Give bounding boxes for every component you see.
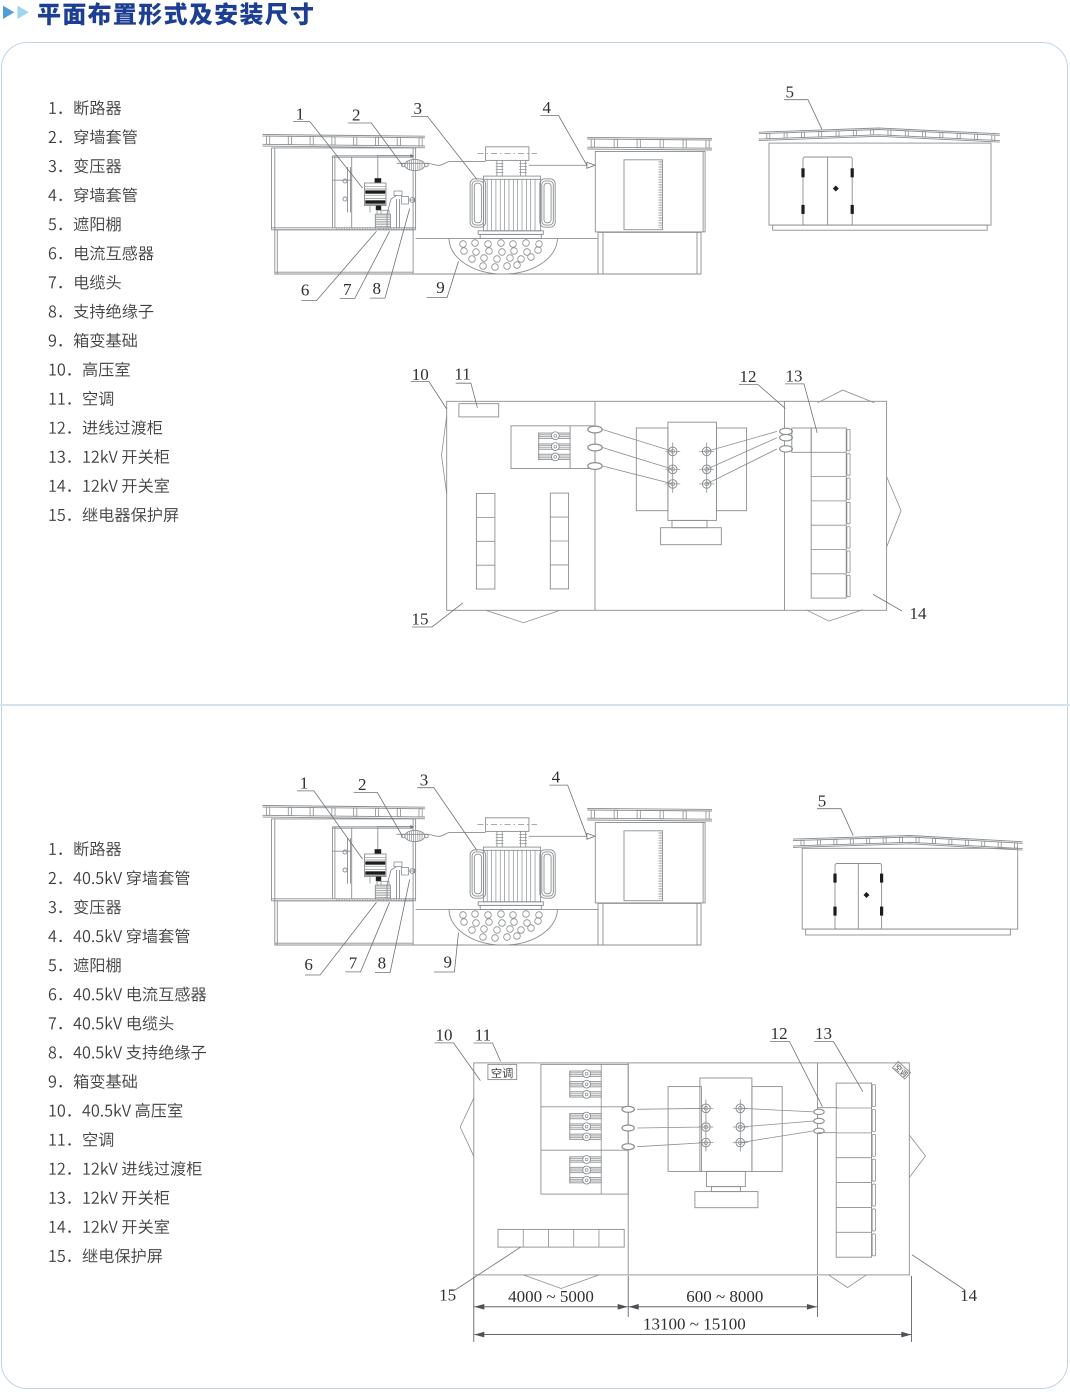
- svg-text:4000 ~ 5000: 4000 ~ 5000: [508, 1287, 594, 1306]
- svg-text:4: 4: [542, 98, 551, 117]
- svg-text:10: 10: [436, 1026, 453, 1045]
- svg-text:8: 8: [378, 953, 387, 972]
- svg-text:3: 3: [414, 99, 423, 118]
- svg-text:9: 9: [436, 278, 445, 297]
- svg-text:11: 11: [454, 365, 470, 384]
- svg-text:14: 14: [910, 604, 928, 623]
- svg-text:600 ~ 8000: 600 ~ 8000: [686, 1287, 763, 1306]
- svg-text:4: 4: [552, 768, 561, 787]
- svg-text:13100 ~ 15100: 13100 ~ 15100: [643, 1315, 746, 1334]
- svg-text:1: 1: [300, 774, 309, 793]
- svg-text:15: 15: [439, 1286, 456, 1305]
- svg-text:3: 3: [420, 770, 429, 789]
- svg-text:7: 7: [349, 953, 358, 972]
- svg-text:12: 12: [771, 1024, 788, 1043]
- svg-text:12: 12: [740, 367, 757, 386]
- svg-text:5: 5: [818, 792, 827, 811]
- svg-text:9: 9: [444, 953, 453, 972]
- svg-text:1: 1: [296, 105, 305, 124]
- svg-text:15: 15: [412, 609, 429, 628]
- svg-text:7: 7: [343, 280, 352, 299]
- svg-text:2: 2: [352, 106, 361, 125]
- svg-text:5: 5: [786, 83, 795, 102]
- svg-text:13: 13: [815, 1024, 832, 1043]
- svg-text:11: 11: [475, 1026, 491, 1045]
- svg-text:6: 6: [304, 955, 313, 974]
- svg-text:2: 2: [358, 775, 367, 794]
- svg-text:13: 13: [786, 367, 803, 386]
- svg-text:8: 8: [373, 279, 382, 298]
- svg-text:6: 6: [301, 281, 310, 300]
